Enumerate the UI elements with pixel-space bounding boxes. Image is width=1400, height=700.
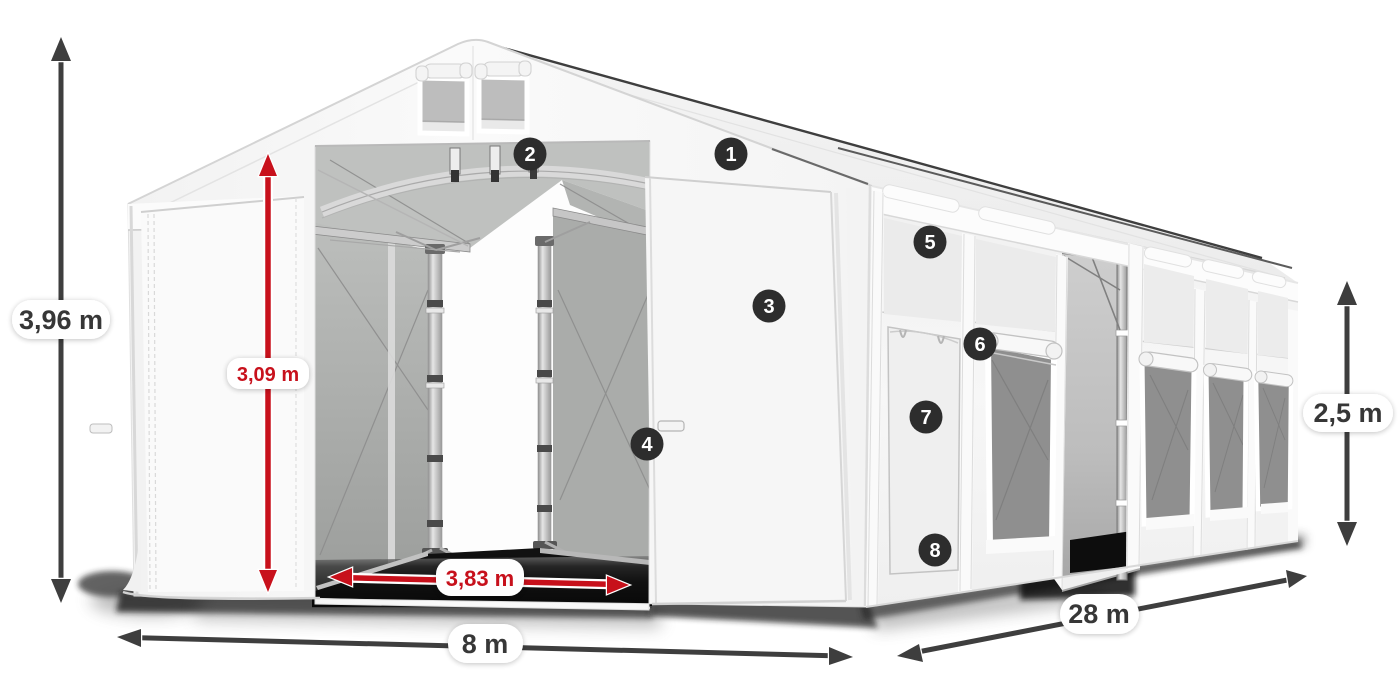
svg-text:6: 6 — [974, 334, 985, 356]
svg-text:8: 8 — [929, 540, 940, 562]
svg-text:3,09 m: 3,09 m — [237, 364, 299, 386]
svg-text:7: 7 — [920, 407, 931, 429]
svg-text:8 m: 8 m — [462, 629, 509, 659]
svg-text:28 m: 28 m — [1068, 599, 1130, 629]
svg-text:3,96 m: 3,96 m — [19, 305, 103, 335]
svg-text:2,5 m: 2,5 m — [1313, 398, 1382, 428]
svg-text:3,83 m: 3,83 m — [446, 566, 515, 591]
svg-text:2: 2 — [524, 144, 535, 166]
svg-text:4: 4 — [641, 434, 653, 456]
svg-text:1: 1 — [725, 144, 736, 166]
svg-text:5: 5 — [924, 232, 935, 254]
svg-text:3: 3 — [763, 296, 774, 318]
